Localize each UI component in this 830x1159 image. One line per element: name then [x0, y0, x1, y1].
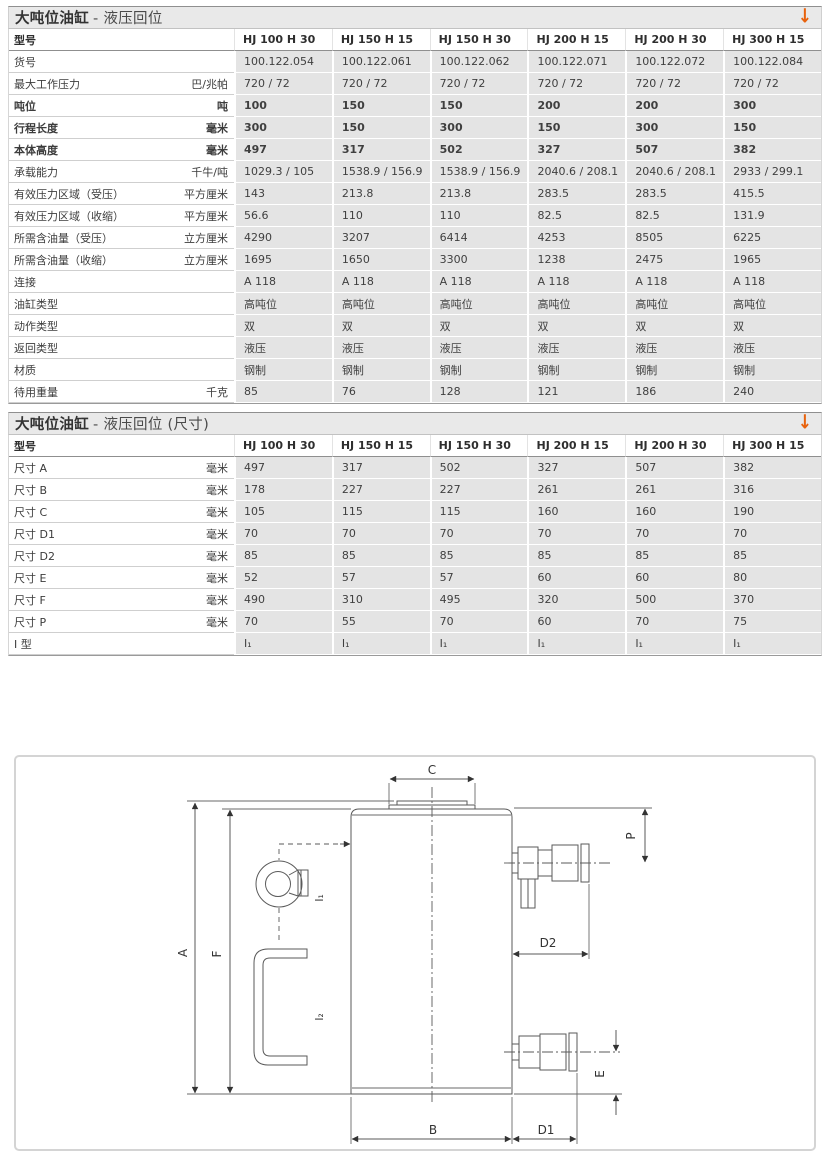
lifting-eye	[256, 861, 308, 907]
unit-label: 千克	[206, 384, 228, 400]
cylinder-dimension-diagram: C A F P D2 E B D1 I₁ I₂	[14, 755, 816, 1151]
table-row: 连接A 118A 118A 118A 118A 118A 118	[9, 271, 821, 293]
table-row: 有效压力区域（受压）平方厘米143213.8213.8283.5283.5415…	[9, 183, 821, 205]
value-cell: 双	[332, 315, 430, 337]
value-cell: 213.8	[332, 183, 430, 205]
value-cell: 105	[234, 501, 332, 523]
lower-port-fitting	[504, 1033, 620, 1071]
table-row: 货号100.122.054100.122.061100.122.062100.1…	[9, 51, 821, 73]
value-cell: 高吨位	[234, 293, 332, 315]
value-cell: I₁	[234, 633, 332, 655]
value-cell: 240	[723, 381, 821, 403]
value-cell: 液压	[625, 337, 723, 359]
value-cell: 液压	[332, 337, 430, 359]
value-cell: 150	[527, 117, 625, 139]
value-cell: 75	[723, 611, 821, 633]
value-cell: I₁	[527, 633, 625, 655]
value-cell: I₁	[723, 633, 821, 655]
value-cell: 8505	[625, 227, 723, 249]
row-label-cell: 所需含油量（收缩）立方厘米	[9, 249, 234, 271]
model-column-header: HJ 150 H 15	[332, 435, 430, 457]
value-cell: 85	[332, 545, 430, 567]
table-row: 尺寸 E毫米525757606080	[9, 567, 821, 589]
value-cell: 85	[430, 545, 528, 567]
value-cell: 160	[625, 501, 723, 523]
table-title-sub: - 液压回位 (尺寸)	[93, 413, 209, 434]
value-cell: 150	[430, 95, 528, 117]
model-column-header: HJ 200 H 30	[625, 435, 723, 457]
value-cell: 双	[234, 315, 332, 337]
value-cell: 300	[430, 117, 528, 139]
value-cell: 1238	[527, 249, 625, 271]
row-label-cell: 尺寸 E毫米	[9, 567, 234, 589]
value-cell: 300	[625, 117, 723, 139]
value-cell: 720 / 72	[527, 73, 625, 95]
dim-label-d1: D1	[538, 1123, 555, 1137]
value-cell: 液压	[234, 337, 332, 359]
table-row: 所需含油量（受压）立方厘米429032076414425385056225	[9, 227, 821, 249]
value-cell: 55	[332, 611, 430, 633]
row-label-cell: 吨位吨	[9, 95, 234, 117]
table-row: 尺寸 D2毫米858585858585	[9, 545, 821, 567]
port-label-i1: I₁	[314, 894, 326, 901]
cylinder-drawing: C A F P D2 E B D1 I₁ I₂	[16, 757, 813, 1148]
row-label: 尺寸 B	[14, 482, 47, 498]
model-column-header: HJ 100 H 30	[234, 29, 332, 51]
value-cell: 720 / 72	[625, 73, 723, 95]
row-label-cell: 最大工作压力巴/兆帕	[9, 73, 234, 95]
value-cell: 3207	[332, 227, 430, 249]
row-label-cell: 本体高度毫米	[9, 139, 234, 161]
value-cell: 327	[527, 139, 625, 161]
value-cell: 57	[430, 567, 528, 589]
value-cell: 80	[723, 567, 821, 589]
value-cell: 720 / 72	[430, 73, 528, 95]
port-label-i2: I₂	[314, 1013, 326, 1020]
row-label-cell: 油缸类型	[9, 293, 234, 315]
value-cell: 60	[527, 611, 625, 633]
value-cell: 317	[332, 457, 430, 479]
table-row: 承载能力千牛/吨1029.3 / 1051538.9 / 156.91538.9…	[9, 161, 821, 183]
row-label: 尺寸 D1	[14, 526, 55, 542]
row-label-cell: 尺寸 P毫米	[9, 611, 234, 633]
value-cell: 283.5	[625, 183, 723, 205]
value-cell: 283.5	[527, 183, 625, 205]
value-cell: 高吨位	[430, 293, 528, 315]
value-cell: 110	[430, 205, 528, 227]
row-label: 尺寸 A	[14, 460, 47, 476]
table-row: 所需含油量（收缩）立方厘米169516503300123824751965	[9, 249, 821, 271]
value-cell: 261	[625, 479, 723, 501]
row-label: 承载能力	[14, 164, 58, 180]
value-cell: 70	[527, 523, 625, 545]
value-cell: 1965	[723, 249, 821, 271]
value-cell: 415.5	[723, 183, 821, 205]
value-cell: 2040.6 / 208.1	[527, 161, 625, 183]
row-label: 尺寸 C	[14, 504, 47, 520]
value-cell: 502	[430, 457, 528, 479]
value-cell: A 118	[723, 271, 821, 293]
row-label-cell: 尺寸 C毫米	[9, 501, 234, 523]
row-label-cell: 动作类型	[9, 315, 234, 337]
value-cell: 382	[723, 139, 821, 161]
value-cell: 液压	[527, 337, 625, 359]
value-cell: 70	[430, 611, 528, 633]
row-label: 尺寸 P	[14, 614, 46, 630]
row-label: 尺寸 F	[14, 592, 46, 608]
value-cell: 1650	[332, 249, 430, 271]
value-cell: 261	[527, 479, 625, 501]
row-label-cell: 有效压力区域（收缩）平方厘米	[9, 205, 234, 227]
model-column-header: HJ 200 H 30	[625, 29, 723, 51]
value-cell: 85	[723, 545, 821, 567]
value-cell: 82.5	[527, 205, 625, 227]
unit-label: 千牛/吨	[191, 164, 228, 180]
unit-label: 平方厘米	[184, 208, 228, 224]
unit-label: 毫米	[206, 592, 228, 608]
row-label: 尺寸 E	[14, 570, 46, 586]
table-title-main: 大吨位油缸	[15, 413, 89, 434]
table-title-sub: - 液压回位	[93, 7, 163, 28]
value-cell: 186	[625, 381, 723, 403]
dim-label-b: B	[429, 1123, 437, 1137]
value-cell: 160	[527, 501, 625, 523]
value-cell: 100.122.084	[723, 51, 821, 73]
spec-table: 型号HJ 100 H 30HJ 150 H 15HJ 150 H 30HJ 20…	[8, 29, 822, 404]
value-cell: 钢制	[234, 359, 332, 381]
table-row: 尺寸 B毫米178227227261261316	[9, 479, 821, 501]
row-label: 行程长度	[14, 120, 58, 136]
model-header-label: 型号	[9, 29, 234, 51]
value-cell: 131.9	[723, 205, 821, 227]
value-cell: 2475	[625, 249, 723, 271]
value-cell: 100	[234, 95, 332, 117]
value-cell: 497	[234, 457, 332, 479]
value-cell: 3300	[430, 249, 528, 271]
value-cell: 1538.9 / 156.9	[430, 161, 528, 183]
value-cell: 200	[625, 95, 723, 117]
value-cell: 70	[332, 523, 430, 545]
value-cell: 178	[234, 479, 332, 501]
value-cell: 高吨位	[332, 293, 430, 315]
row-label: 吨位	[14, 98, 36, 114]
row-label-cell: 所需含油量（受压）立方厘米	[9, 227, 234, 249]
value-cell: 100.122.054	[234, 51, 332, 73]
value-cell: 6414	[430, 227, 528, 249]
unit-label: 毫米	[206, 142, 228, 158]
value-cell: 490	[234, 589, 332, 611]
value-cell: 双	[430, 315, 528, 337]
value-cell: 497	[234, 139, 332, 161]
value-cell: 70	[723, 523, 821, 545]
value-cell: 4290	[234, 227, 332, 249]
value-cell: 720 / 72	[723, 73, 821, 95]
orange-down-arrow-icon: ↓	[798, 414, 812, 434]
value-cell: 720 / 72	[332, 73, 430, 95]
model-column-header: HJ 300 H 15	[723, 435, 821, 457]
row-label: 所需含油量（受压）	[14, 230, 113, 246]
value-cell: 110	[332, 205, 430, 227]
table-row: 尺寸 P毫米705570607075	[9, 611, 821, 633]
value-cell: 121	[527, 381, 625, 403]
value-cell: 370	[723, 589, 821, 611]
value-cell: 57	[332, 567, 430, 589]
value-cell: 100.122.071	[527, 51, 625, 73]
value-cell: 高吨位	[625, 293, 723, 315]
table-row: 尺寸 D1毫米707070707070	[9, 523, 821, 545]
table-row: 吨位吨100150150200200300	[9, 95, 821, 117]
unit-label: 毫米	[206, 614, 228, 630]
value-cell: 128	[430, 381, 528, 403]
value-cell: A 118	[332, 271, 430, 293]
row-label: 材质	[14, 362, 36, 378]
row-label: 本体高度	[14, 142, 58, 158]
data-table: 型号HJ 100 H 30HJ 150 H 15HJ 150 H 30HJ 20…	[9, 29, 821, 403]
unit-label: 平方厘米	[184, 186, 228, 202]
row-label: 油缸类型	[14, 296, 58, 312]
value-cell: 115	[332, 501, 430, 523]
table-row: 动作类型双双双双双双	[9, 315, 821, 337]
dim-label-f: F	[210, 950, 224, 957]
data-table: 型号HJ 100 H 30HJ 150 H 15HJ 150 H 30HJ 20…	[9, 435, 821, 655]
row-label: 待用重量	[14, 384, 58, 400]
value-cell: 70	[625, 523, 723, 545]
value-cell: 1695	[234, 249, 332, 271]
value-cell: 76	[332, 381, 430, 403]
row-label-cell: 尺寸 D2毫米	[9, 545, 234, 567]
dim-label-a: A	[176, 948, 190, 957]
cylinder-body	[351, 809, 512, 1094]
value-cell: 钢制	[332, 359, 430, 381]
value-cell: 高吨位	[527, 293, 625, 315]
value-cell: 327	[527, 457, 625, 479]
model-column-header: HJ 100 H 30	[234, 435, 332, 457]
dim-label-e: E	[593, 1070, 607, 1078]
row-label-cell: 尺寸 D1毫米	[9, 523, 234, 545]
row-label: 动作类型	[14, 318, 58, 334]
value-cell: 143	[234, 183, 332, 205]
value-cell: 500	[625, 589, 723, 611]
value-cell: 液压	[723, 337, 821, 359]
table-row: 有效压力区域（收缩）平方厘米56.611011082.582.5131.9	[9, 205, 821, 227]
value-cell: 200	[527, 95, 625, 117]
unit-label: 巴/兆帕	[191, 76, 228, 92]
value-cell: 310	[332, 589, 430, 611]
model-column-header: HJ 200 H 15	[527, 435, 625, 457]
value-cell: 382	[723, 457, 821, 479]
table-title-bar: 大吨位油缸 - 液压回位 (尺寸) ↓	[8, 412, 822, 435]
row-label-cell: 连接	[9, 271, 234, 293]
row-label-cell: 尺寸 F毫米	[9, 589, 234, 611]
value-cell: A 118	[527, 271, 625, 293]
value-cell: 双	[625, 315, 723, 337]
unit-label: 毫米	[206, 482, 228, 498]
row-label-cell: 尺寸 A毫米	[9, 457, 234, 479]
model-header-label: 型号	[9, 435, 234, 457]
value-cell: 100.122.072	[625, 51, 723, 73]
unit-label: 立方厘米	[184, 230, 228, 246]
value-cell: 495	[430, 589, 528, 611]
row-label: 返回类型	[14, 340, 58, 356]
row-label-cell: 货号	[9, 51, 234, 73]
value-cell: 300	[234, 117, 332, 139]
value-cell: 100.122.061	[332, 51, 430, 73]
unit-label: 毫米	[206, 120, 228, 136]
upper-port-fitting	[504, 844, 612, 908]
value-cell: 100.122.062	[430, 51, 528, 73]
spec-table-section: 大吨位油缸 - 液压回位 ↓ 型号HJ 100 H 30HJ 150 H 15H…	[8, 6, 822, 404]
value-cell: 507	[625, 139, 723, 161]
value-cell: 85	[234, 545, 332, 567]
value-cell: 190	[723, 501, 821, 523]
unit-label: 毫米	[206, 460, 228, 476]
row-label-cell: 行程长度毫米	[9, 117, 234, 139]
unit-label: 吨	[217, 98, 228, 114]
row-label: 最大工作压力	[14, 76, 80, 92]
value-cell: 85	[234, 381, 332, 403]
value-cell: 4253	[527, 227, 625, 249]
dim-label-p: P	[624, 832, 638, 839]
value-cell: 70	[234, 611, 332, 633]
value-cell: 1029.3 / 105	[234, 161, 332, 183]
table-row: I 型I₁I₁I₁I₁I₁I₁	[9, 633, 821, 655]
value-cell: 双	[527, 315, 625, 337]
row-label-cell: I 型	[9, 633, 234, 655]
table-row: 油缸类型高吨位高吨位高吨位高吨位高吨位高吨位	[9, 293, 821, 315]
model-column-header: HJ 300 H 15	[723, 29, 821, 51]
unit-label: 毫米	[206, 504, 228, 520]
unit-label: 毫米	[206, 526, 228, 542]
header-row: 型号HJ 100 H 30HJ 150 H 15HJ 150 H 30HJ 20…	[9, 435, 821, 457]
value-cell: 300	[723, 95, 821, 117]
row-label: 连接	[14, 274, 36, 290]
value-cell: 52	[234, 567, 332, 589]
value-cell: 双	[723, 315, 821, 337]
row-label-cell: 承载能力千牛/吨	[9, 161, 234, 183]
value-cell: 70	[430, 523, 528, 545]
value-cell: 56.6	[234, 205, 332, 227]
model-column-header: HJ 150 H 15	[332, 29, 430, 51]
table-row: 待用重量千克8576128121186240	[9, 381, 821, 403]
dimensions-table-section: 大吨位油缸 - 液压回位 (尺寸) ↓ 型号HJ 100 H 30HJ 150 …	[8, 412, 822, 656]
dimensions-table: 型号HJ 100 H 30HJ 150 H 15HJ 150 H 30HJ 20…	[8, 435, 822, 656]
row-label: 尺寸 D2	[14, 548, 55, 564]
row-label-cell: 有效压力区域（受压）平方厘米	[9, 183, 234, 205]
table-title-bar: 大吨位油缸 - 液压回位 ↓	[8, 6, 822, 29]
table-row: 返回类型液压液压液压液压液压液压	[9, 337, 821, 359]
value-cell: 1538.9 / 156.9	[332, 161, 430, 183]
value-cell: 70	[625, 611, 723, 633]
value-cell: 液压	[430, 337, 528, 359]
dim-label-d2: D2	[540, 936, 557, 950]
value-cell: I₁	[430, 633, 528, 655]
table-row: 材质钢制钢制钢制钢制钢制钢制	[9, 359, 821, 381]
extension-lines	[187, 783, 652, 1144]
dim-label-c: C	[428, 763, 436, 777]
row-label-cell: 材质	[9, 359, 234, 381]
value-cell: 320	[527, 589, 625, 611]
value-cell: A 118	[234, 271, 332, 293]
value-cell: I₁	[625, 633, 723, 655]
value-cell: 60	[527, 567, 625, 589]
value-cell: 150	[332, 95, 430, 117]
model-column-header: HJ 150 H 30	[430, 29, 528, 51]
carry-handle	[254, 949, 307, 1065]
value-cell: I₁	[332, 633, 430, 655]
table-row: 尺寸 A毫米497317502327507382	[9, 457, 821, 479]
value-cell: 316	[723, 479, 821, 501]
table-row: 本体高度毫米497317502327507382	[9, 139, 821, 161]
value-cell: 钢制	[527, 359, 625, 381]
unit-label: 毫米	[206, 548, 228, 564]
row-label-cell: 待用重量千克	[9, 381, 234, 403]
value-cell: 227	[430, 479, 528, 501]
value-cell: 60	[625, 567, 723, 589]
value-cell: 高吨位	[723, 293, 821, 315]
row-label: 货号	[14, 54, 36, 70]
value-cell: 钢制	[625, 359, 723, 381]
table-row: 尺寸 F毫米490310495320500370	[9, 589, 821, 611]
value-cell: 507	[625, 457, 723, 479]
table-title-main: 大吨位油缸	[15, 7, 89, 28]
unit-label: 毫米	[206, 570, 228, 586]
unit-label: 立方厘米	[184, 252, 228, 268]
value-cell: 502	[430, 139, 528, 161]
value-cell: 82.5	[625, 205, 723, 227]
row-label: I 型	[14, 636, 32, 652]
value-cell: 115	[430, 501, 528, 523]
value-cell: 2040.6 / 208.1	[625, 161, 723, 183]
orange-down-arrow-icon: ↓	[798, 8, 812, 28]
value-cell: 2933 / 299.1	[723, 161, 821, 183]
value-cell: 钢制	[430, 359, 528, 381]
row-label-cell: 返回类型	[9, 337, 234, 359]
table-row: 最大工作压力巴/兆帕720 / 72720 / 72720 / 72720 / …	[9, 73, 821, 95]
value-cell: 6225	[723, 227, 821, 249]
value-cell: 85	[625, 545, 723, 567]
value-cell: 70	[234, 523, 332, 545]
dimension-lines	[195, 779, 645, 1139]
value-cell: A 118	[430, 271, 528, 293]
value-cell: 钢制	[723, 359, 821, 381]
row-label-cell: 尺寸 B毫米	[9, 479, 234, 501]
row-label: 所需含油量（收缩）	[14, 252, 113, 268]
value-cell: 317	[332, 139, 430, 161]
row-label: 有效压力区域（受压）	[14, 186, 124, 202]
value-cell: 227	[332, 479, 430, 501]
model-column-header: HJ 200 H 15	[527, 29, 625, 51]
value-cell: A 118	[625, 271, 723, 293]
value-cell: 150	[723, 117, 821, 139]
table-row: 尺寸 C毫米105115115160160190	[9, 501, 821, 523]
table-row: 行程长度毫米300150300150300150	[9, 117, 821, 139]
value-cell: 150	[332, 117, 430, 139]
header-row: 型号HJ 100 H 30HJ 150 H 15HJ 150 H 30HJ 20…	[9, 29, 821, 51]
row-label: 有效压力区域（收缩）	[14, 208, 124, 224]
value-cell: 720 / 72	[234, 73, 332, 95]
value-cell: 85	[527, 545, 625, 567]
value-cell: 213.8	[430, 183, 528, 205]
model-column-header: HJ 150 H 30	[430, 435, 528, 457]
